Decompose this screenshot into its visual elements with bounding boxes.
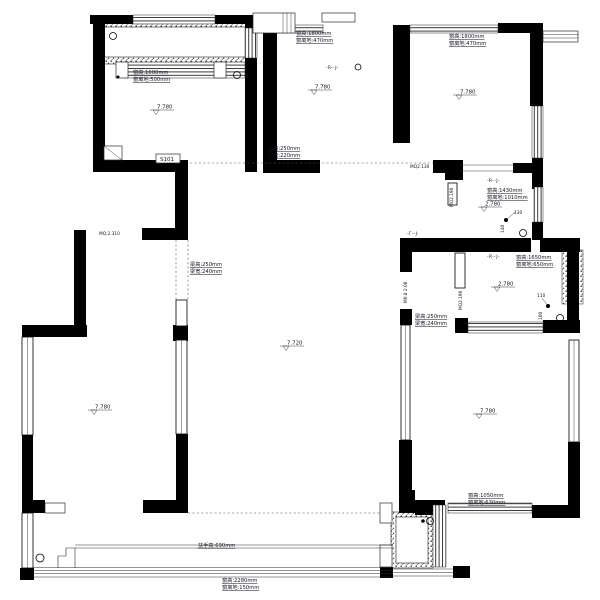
window-dim-text: 窗高:1650mm — [516, 253, 551, 261]
svg-text:7.780: 7.780 — [157, 105, 173, 111]
circle-symbol — [36, 554, 44, 562]
svg-text:7.780: 7.780 — [95, 405, 111, 411]
beam-dim-text: 梁高:250mm — [415, 312, 447, 320]
circle-symbol — [355, 64, 361, 70]
circle-symbol — [520, 230, 527, 237]
beam-dim-text: 梁宽:240mm — [415, 319, 447, 327]
svg-text:7.780: 7.780 — [460, 90, 476, 96]
beam-dashed-lines — [176, 163, 433, 513]
window-dim-text: 窗离地:470mm — [296, 36, 333, 44]
elevation-marker: 7.780 — [88, 405, 112, 415]
bay-window-frame — [97, 20, 253, 64]
beam-dim-text: 梁高:250mm — [190, 260, 222, 268]
slide-door-tag: -Γ--J- — [407, 231, 419, 237]
floor-plan-page: 7.780 7.780 7.780 2.780 2.780 7.720 7.78… — [0, 0, 600, 600]
beam-dim-text: 梁高:250mm — [268, 144, 300, 152]
window-dim-text: 窗高:1800mm — [296, 29, 331, 37]
dim-leader-text: 430 — [514, 210, 522, 216]
window-dim-text: 窗高:1430mm — [487, 186, 522, 194]
dot-symbol — [117, 76, 120, 79]
elevation-marker: 7.780 — [308, 85, 332, 95]
window-dim-text: 窗离地:1010mm — [487, 193, 528, 201]
window-dim-text: 窗高:2280mm — [222, 576, 257, 584]
svg-text:7.780: 7.780 — [480, 409, 496, 415]
rail-height-text: 扶手高:690mm — [198, 541, 235, 549]
door-swing-corner — [104, 146, 122, 160]
window-dim-text: 窗高:1050mm — [468, 491, 503, 499]
svg-text:2.780: 2.780 — [498, 282, 514, 288]
elevation-marker: 7.780 — [150, 105, 174, 115]
window-dim-text: 窗离地:650mm — [516, 260, 553, 268]
window-dim-text: 窗离地:150mm — [222, 583, 259, 591]
curtain-wall-tag: MQ2.190 — [458, 290, 464, 310]
beam-dim-text: 梁宽:220mm — [268, 151, 300, 159]
svg-text:2.780: 2.780 — [485, 202, 501, 208]
slide-door-tag: -R--J- — [487, 254, 500, 260]
dim-leader-text: 140 — [500, 225, 506, 233]
elevation-marker: 2.780 — [478, 202, 502, 212]
dim-leader-text: 110 — [537, 293, 545, 299]
window-dim-text: 窗离地:500mm — [133, 75, 170, 83]
window-dim-text: 窗离地:470mm — [449, 39, 486, 47]
symbol-marks — [36, 33, 564, 563]
svg-text:S101: S101 — [160, 157, 174, 163]
door-tag: S101 — [156, 154, 180, 163]
floor-plan-drawing: 7.780 7.780 7.780 2.780 2.780 7.720 7.78… — [0, 0, 600, 600]
elevation-marker: 2.780 — [491, 282, 515, 292]
door-size-tag: M0.8 2.08 — [403, 281, 409, 303]
svg-text:7.720: 7.720 — [287, 341, 303, 347]
window-dim-text: 窗高:1800mm — [449, 32, 484, 40]
slide-door-tag: -R--J- — [326, 65, 339, 71]
elevation-marker: 7.720 — [280, 341, 304, 351]
outline-details — [45, 13, 578, 568]
slide-door-tag: -R--J- — [487, 178, 500, 184]
window-dim-text: 窗离地:630mm — [468, 498, 505, 506]
svg-text:7.780: 7.780 — [315, 85, 331, 91]
elevation-marker: 7.780 — [453, 90, 477, 100]
balcony-step — [58, 548, 75, 568]
dot-symbol — [421, 519, 425, 523]
beam-dim-text: 梁宽:240mm — [190, 267, 222, 275]
curtain-wall-tag: MQ2.190 — [449, 187, 455, 207]
window-dim-text: 窗高:1000mm — [133, 68, 168, 76]
curtain-wall-tag: MQ:2.310 — [99, 231, 120, 237]
elevation-marker: 7.780 — [473, 409, 497, 419]
curtain-wall-tag: MQ2.130 — [410, 164, 430, 170]
dim-leader-text: 100 — [538, 312, 544, 320]
